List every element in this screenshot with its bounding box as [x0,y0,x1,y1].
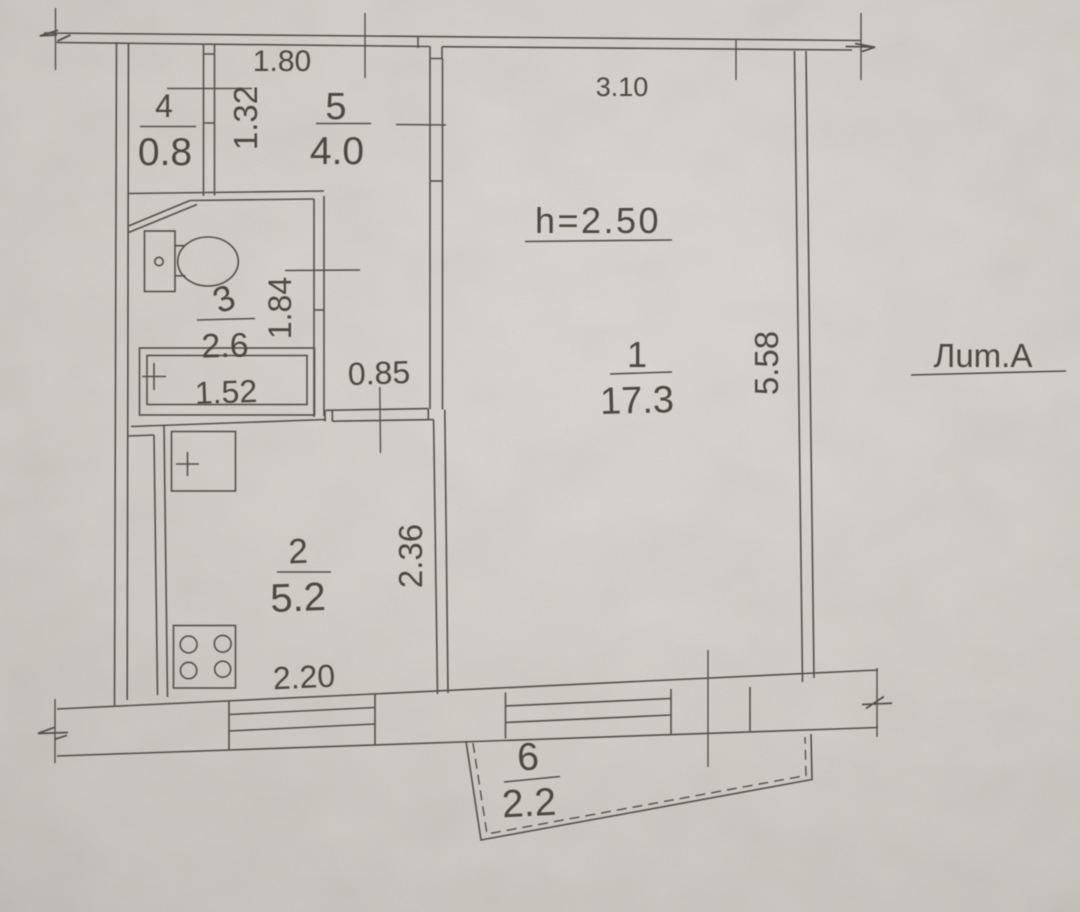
svg-text:Лum.A: Лum.A [934,337,1033,374]
svg-text:5.58: 5.58 [748,331,785,395]
svg-text:17.3: 17.3 [600,379,675,423]
svg-text:0.8: 0.8 [138,131,192,174]
svg-text:3.10: 3.10 [596,72,649,102]
svg-text:1.32: 1.32 [227,86,264,150]
svg-text:1.84: 1.84 [262,277,298,339]
svg-text:2.6: 2.6 [201,326,249,365]
svg-text:5: 5 [325,86,346,128]
svg-text:2: 2 [288,532,309,572]
svg-text:1.80: 1.80 [253,45,311,78]
svg-text:6: 6 [516,735,540,779]
svg-text:4: 4 [155,88,173,124]
svg-text:4.0: 4.0 [310,130,364,173]
svg-text:0.85: 0.85 [347,354,410,392]
svg-text:2.20: 2.20 [272,658,336,697]
svg-text:5.2: 5.2 [269,575,326,621]
svg-text:h=2.50: h=2.50 [535,200,661,241]
svg-text:2.36: 2.36 [392,524,429,588]
svg-text:1.52: 1.52 [194,373,257,411]
svg-text:1: 1 [627,334,647,375]
svg-text:2.2: 2.2 [501,781,557,827]
